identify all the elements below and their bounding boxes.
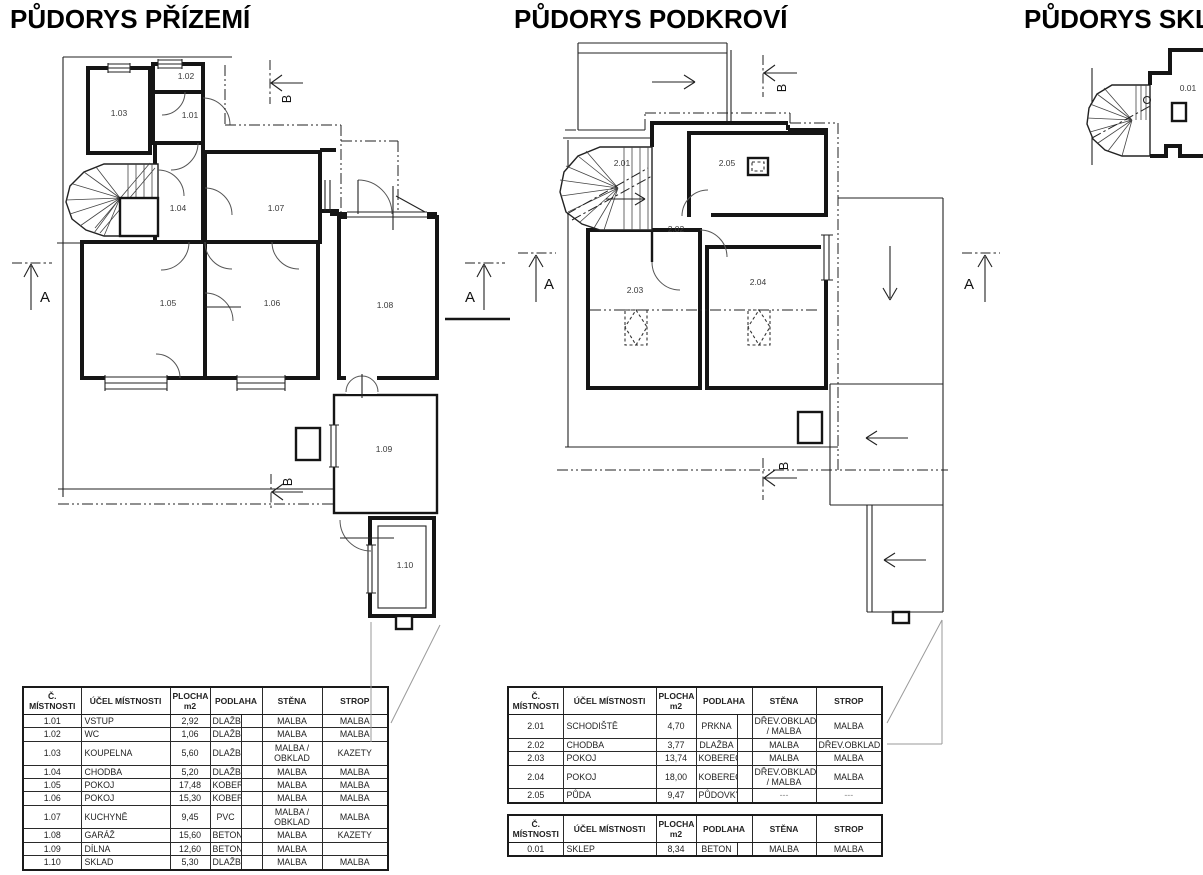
- room-label: 1.05: [160, 298, 177, 308]
- chimney-attic: [748, 158, 768, 175]
- table-cell: MALBA: [322, 778, 388, 791]
- table-cell: MALBA / OBKLAD: [262, 805, 322, 829]
- svg-text:B: B: [281, 478, 295, 486]
- table-cell: 1.01: [23, 715, 81, 728]
- column-header: PODLAHA: [696, 687, 752, 715]
- table-cell: SCHODIŠTĚ: [563, 715, 656, 739]
- table-cell: POKOJ: [81, 792, 170, 805]
- table-cell: 2.04: [508, 765, 563, 789]
- room-label: 2.04: [750, 277, 767, 287]
- table-cell: DLAŽBA: [696, 738, 737, 751]
- svg-text:B: B: [280, 95, 294, 103]
- column-header: PODLAHA: [210, 687, 262, 715]
- table-row: 1.09DÍLNA12,60BETONMALBA: [23, 842, 388, 855]
- table-cell-spacer: [737, 715, 752, 739]
- section-marker-b-bottom-attic: B: [763, 458, 797, 500]
- svg-text:A: A: [544, 276, 554, 293]
- table-cell: MALBA: [322, 805, 388, 829]
- table-cell: 4,70: [656, 715, 696, 739]
- table-cell-spacer: [737, 789, 752, 803]
- table-cell: 2.02: [508, 738, 563, 751]
- table-header-row: Č. MÍSTNOSTIÚČEL MÍSTNOSTIPLOCHA m2PODLA…: [23, 687, 388, 715]
- table-cell: PŮDA: [563, 789, 656, 803]
- table-row: 1.02WC1,06DLAŽBAMALBAMALBA: [23, 728, 388, 741]
- table-cell: MALBA: [816, 843, 882, 857]
- column-header: STROP: [816, 815, 882, 843]
- table-cell-spacer: [241, 805, 262, 829]
- table-cell: POKOJ: [81, 778, 170, 791]
- page-title-basement: PŮDORYS SKL: [1024, 4, 1203, 35]
- roof-slope-arrow-left-lower: [884, 553, 926, 567]
- table-cell: DLAŽBA: [210, 715, 241, 728]
- table-cell: MALBA: [322, 856, 388, 870]
- table-cell: GARÁŽ: [81, 829, 170, 842]
- entry-step: [396, 616, 412, 629]
- table-cell: 5,60: [170, 741, 210, 765]
- room-label: 2.02: [668, 224, 685, 234]
- chimney-ground: [296, 428, 320, 460]
- table-cell: BETON: [696, 843, 737, 857]
- room-label: 0.01: [1180, 83, 1197, 93]
- column-header: ÚČEL MÍSTNOSTI: [563, 687, 656, 715]
- svg-text:A: A: [465, 289, 475, 306]
- leader-lines-attic: [887, 620, 942, 744]
- table-cell: DŘEV.OBKLAD: [816, 738, 882, 751]
- table-cell: 1.06: [23, 792, 81, 805]
- table-cell: 9,45: [170, 805, 210, 829]
- table-cell: DŘEV.OBKLAD / MALBA: [752, 765, 816, 789]
- table-cell: MALBA: [262, 765, 322, 778]
- table-cell: DŘEV.OBKLAD / MALBA: [752, 715, 816, 739]
- table-cell-spacer: [737, 738, 752, 751]
- table-cell: 0.01: [508, 843, 563, 857]
- section-marker-a-left-attic: A: [518, 253, 556, 302]
- plan-basement: 0.01: [1087, 50, 1203, 165]
- window-icon: [105, 58, 376, 593]
- table-cell: MALBA: [262, 715, 322, 728]
- section-marker-a-right-attic: A: [962, 253, 1000, 302]
- roof-slope-arrow-down: [883, 246, 897, 300]
- section-marker-b-top: B: [270, 60, 303, 104]
- table-cell: 13,74: [656, 752, 696, 765]
- table-cell: 2.05: [508, 789, 563, 803]
- column-header: STROP: [816, 687, 882, 715]
- column-header: STROP: [322, 687, 388, 715]
- plan-attic: A A B B 2.01 2.02 2.03 2.04: [518, 43, 1000, 744]
- table-cell: MALBA: [752, 843, 816, 857]
- table-cell: DLAŽBA: [210, 765, 241, 778]
- table-row: 1.06POKOJ15,30KOBERECMALBAMALBA: [23, 792, 388, 805]
- table-cell: MALBA: [752, 738, 816, 751]
- table-cell: ---: [816, 789, 882, 803]
- table-cell: KOBEREC: [210, 792, 241, 805]
- door-swing-icons-attic: [652, 190, 727, 290]
- table-cell: 2.01: [508, 715, 563, 739]
- table-cell: 8,34: [656, 843, 696, 857]
- table-cell: VSTUP: [81, 715, 170, 728]
- table-cell: 5,30: [170, 856, 210, 870]
- table-cell-spacer: [241, 792, 262, 805]
- table-cell: 3,77: [656, 738, 696, 751]
- table-cell: MALBA: [816, 715, 882, 739]
- staircase-ground-icon: [66, 163, 158, 236]
- svg-text:A: A: [964, 276, 974, 293]
- roof-slope-arrow-left-upper: [866, 431, 908, 445]
- table-row: 0.01SKLEP8,34BETONMALBAMALBA: [508, 843, 882, 857]
- column-header: STĚNA: [752, 815, 816, 843]
- table-cell: MALBA: [816, 752, 882, 765]
- table-row: 1.04CHODBA5,20DLAŽBAMALBAMALBA: [23, 765, 388, 778]
- room-label: 1.08: [377, 300, 394, 310]
- table-cell: BETON: [210, 842, 241, 855]
- column-header: STĚNA: [752, 687, 816, 715]
- table-header-row: Č. MÍSTNOSTIÚČEL MÍSTNOSTIPLOCHA m2PODLA…: [508, 815, 882, 843]
- table-cell: 1.07: [23, 805, 81, 829]
- table-cell: 1.02: [23, 728, 81, 741]
- table-row: 2.01SCHODIŠTĚ4,70PRKNADŘEV.OBKLAD / MALB…: [508, 715, 882, 739]
- table-cell: 1.10: [23, 856, 81, 870]
- table-cell: MALBA: [816, 765, 882, 789]
- table-row: 1.01VSTUP2,92DLAŽBAMALBAMALBA: [23, 715, 388, 728]
- room-1-09-walls: [334, 395, 437, 513]
- section-marker-b-top-attic: B: [763, 55, 797, 97]
- table-header-row: Č. MÍSTNOSTIÚČEL MÍSTNOSTIPLOCHA m2PODLA…: [508, 687, 882, 715]
- table-cell: 12,60: [170, 842, 210, 855]
- column-header: ÚČEL MÍSTNOSTI: [563, 815, 656, 843]
- table-cell: DLAŽBA: [210, 856, 241, 870]
- table-cell: DÍLNA: [81, 842, 170, 855]
- table-cell: 1.04: [23, 765, 81, 778]
- table-cell-spacer: [241, 741, 262, 765]
- room-label: 1.01: [182, 110, 199, 120]
- table-cell: [322, 842, 388, 855]
- page-title-attic: PŮDORYS PODKROVÍ: [514, 4, 788, 35]
- table-cell: 15,60: [170, 829, 210, 842]
- floor-plan-document: PŮDORYS PŘÍZEMÍ PŮDORYS PODKROVÍ PŮDORYS…: [0, 0, 1203, 875]
- section-marker-a-right: A: [465, 263, 505, 310]
- table-cell: 2,92: [170, 715, 210, 728]
- table-cell-spacer: [241, 778, 262, 791]
- table-cell: MALBA: [262, 829, 322, 842]
- table-cell: KUCHYNĚ: [81, 805, 170, 829]
- table-cell: MALBA: [322, 765, 388, 778]
- table-cell: MALBA: [322, 792, 388, 805]
- column-header: PLOCHA m2: [170, 687, 210, 715]
- table-row: 1.07KUCHYNĚ9,45PVCMALBA / OBKLADMALBA: [23, 805, 388, 829]
- section-marker-a-left: A: [12, 263, 52, 310]
- table-cell-spacer: [241, 715, 262, 728]
- svg-text:B: B: [777, 462, 791, 470]
- room-label: 1.02: [178, 71, 195, 81]
- table-cell: SKLAD: [81, 856, 170, 870]
- table-cell: 1.09: [23, 842, 81, 855]
- table-cell: 5,20: [170, 765, 210, 778]
- table-row: 1.10SKLAD5,30DLAŽBAMALBAMALBA: [23, 856, 388, 870]
- column-header: Č. MÍSTNOSTI: [508, 815, 563, 843]
- room-label: 2.03: [627, 285, 644, 295]
- table-cell: KOBEREC: [696, 765, 737, 789]
- table-cell-spacer: [241, 829, 262, 842]
- table-cell: DLAŽBA: [210, 741, 241, 765]
- table-cell: MALBA / OBKLAD: [262, 741, 322, 765]
- skylight-icon: [625, 310, 770, 345]
- table-cell: MALBA: [262, 792, 322, 805]
- table-cell-spacer: [737, 843, 752, 857]
- table-row: 2.03POKOJ13,74KOBERECMALBAMALBA: [508, 752, 882, 765]
- table-cell: POKOJ: [563, 752, 656, 765]
- column-header: ÚČEL MÍSTNOSTI: [81, 687, 170, 715]
- table-cell: WC: [81, 728, 170, 741]
- table-cell: PRKNA: [696, 715, 737, 739]
- column-header: PLOCHA m2: [656, 815, 696, 843]
- room-label: 1.06: [264, 298, 281, 308]
- table-cell: CHODBA: [81, 765, 170, 778]
- table-cell: PŮDOVKY: [696, 789, 737, 803]
- table-cell: MALBA: [322, 715, 388, 728]
- table-cell: ---: [752, 789, 816, 803]
- room-table-attic: Č. MÍSTNOSTIÚČEL MÍSTNOSTIPLOCHA m2PODLA…: [507, 686, 883, 804]
- room-label: 1.04: [170, 203, 187, 213]
- table-cell: MALBA: [262, 728, 322, 741]
- table-cell: DLAŽBA: [210, 728, 241, 741]
- table-row: 1.03KOUPELNA5,60DLAŽBAMALBA / OBKLADKAZE…: [23, 741, 388, 765]
- svg-text:B: B: [775, 84, 789, 92]
- table-cell: MALBA: [262, 856, 322, 870]
- table-cell: 1.03: [23, 741, 81, 765]
- column-header: STĚNA: [262, 687, 322, 715]
- table-row: 2.02CHODBA3,77DLAŽBAMALBADŘEV.OBKLAD: [508, 738, 882, 751]
- table-cell: 18,00: [656, 765, 696, 789]
- table-cell: KOUPELNA: [81, 741, 170, 765]
- table-cell: BETON: [210, 829, 241, 842]
- table-cell-spacer: [737, 752, 752, 765]
- table-row: 1.08GARÁŽ15,60BETONMALBAKAZETY: [23, 829, 388, 842]
- table-cell: MALBA: [262, 842, 322, 855]
- chimney-basement: [1172, 103, 1186, 121]
- room-label: 2.01: [614, 158, 631, 168]
- staircase-basement-icon: [1087, 85, 1152, 156]
- staircase-attic-icon: [560, 147, 652, 230]
- section-marker-b-bottom: B: [271, 474, 303, 508]
- page-title-ground-floor: PŮDORYS PŘÍZEMÍ: [10, 4, 250, 35]
- door-swing-icons: [156, 92, 425, 551]
- table-cell: MALBA: [322, 728, 388, 741]
- table-cell: SKLEP: [563, 843, 656, 857]
- table-cell: 15,30: [170, 792, 210, 805]
- table-row: 2.04POKOJ18,00KOBERECDŘEV.OBKLAD / MALBA…: [508, 765, 882, 789]
- table-cell: 1,06: [170, 728, 210, 741]
- column-header: PLOCHA m2: [656, 687, 696, 715]
- table-cell: CHODBA: [563, 738, 656, 751]
- column-header: Č. MÍSTNOSTI: [23, 687, 81, 715]
- column-header: Č. MÍSTNOSTI: [508, 687, 563, 715]
- chimney-roof: [798, 412, 822, 443]
- column-header: PODLAHA: [696, 815, 752, 843]
- table-cell-spacer: [241, 842, 262, 855]
- table-cell: POKOJ: [563, 765, 656, 789]
- plan-ground: A A B B 1.01 1.02 1.03 1.04: [12, 57, 510, 742]
- table-cell: 1.05: [23, 778, 81, 791]
- table-cell: 17,48: [170, 778, 210, 791]
- room-label: 2.05: [719, 158, 736, 168]
- table-cell: MALBA: [752, 752, 816, 765]
- table-cell: KOBEREC: [696, 752, 737, 765]
- svg-text:A: A: [40, 289, 50, 306]
- room-label: 1.03: [111, 108, 128, 118]
- table-row: 1.05POKOJ17,48KOBERECMALBAMALBA: [23, 778, 388, 791]
- room-label: 1.07: [268, 203, 285, 213]
- table-cell: KOBEREC: [210, 778, 241, 791]
- table-row: 2.05PŮDA9,47PŮDOVKY------: [508, 789, 882, 803]
- table-cell-spacer: [241, 728, 262, 741]
- table-cell: KAZETY: [322, 829, 388, 842]
- room-label: 1.10: [397, 560, 414, 570]
- table-cell: KAZETY: [322, 741, 388, 765]
- table-cell: 9,47: [656, 789, 696, 803]
- table-cell: MALBA: [262, 778, 322, 791]
- roof-slope-arrow-right: [652, 75, 695, 89]
- room-label: 1.09: [376, 444, 393, 454]
- table-cell-spacer: [737, 765, 752, 789]
- table-cell-spacer: [241, 765, 262, 778]
- room-table-ground: Č. MÍSTNOSTIÚČEL MÍSTNOSTIPLOCHA m2PODLA…: [22, 686, 389, 871]
- table-cell: 2.03: [508, 752, 563, 765]
- room-table-basement: Č. MÍSTNOSTIÚČEL MÍSTNOSTIPLOCHA m2PODLA…: [507, 814, 883, 857]
- table-cell-spacer: [241, 856, 262, 870]
- table-cell: PVC: [210, 805, 241, 829]
- table-cell: 1.08: [23, 829, 81, 842]
